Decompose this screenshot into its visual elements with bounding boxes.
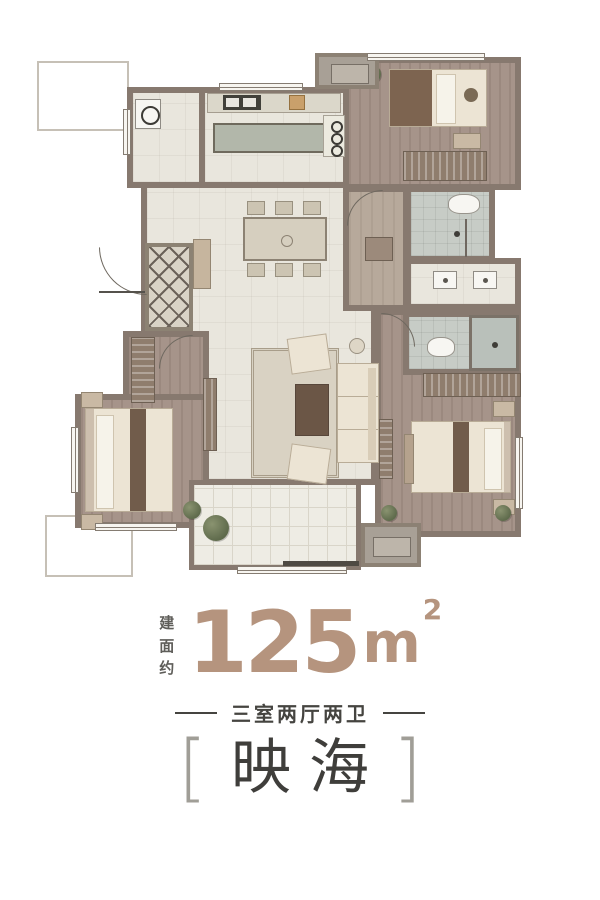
dining-table: [243, 217, 327, 261]
window-small-bedroom-bottom: [95, 523, 177, 531]
window-laundry: [123, 109, 131, 155]
stove-icon: [323, 115, 345, 157]
floor-plan: [37, 53, 567, 588]
shoe-cabinet: [193, 239, 211, 289]
project-name-bracket-left: [: [178, 731, 207, 805]
window-kitchen: [219, 83, 303, 91]
tv-cabinet-living: [203, 378, 217, 451]
vanity-sink-left-icon: [433, 271, 457, 289]
entry-door-leaf: [99, 291, 145, 293]
project-name: 映海: [207, 732, 393, 804]
vanity-area: [405, 258, 521, 310]
area-row: 建面约 125 m 2: [158, 600, 442, 686]
vanity-sink-right-icon: [473, 271, 497, 289]
toilet-master-icon: [427, 337, 455, 357]
bed-secondary: [389, 69, 487, 127]
armchair-bottom: [287, 443, 332, 484]
window-secondary-bedroom: [367, 53, 485, 61]
layout-subtitle: 三室两厅两卫: [231, 698, 369, 727]
nightstand: [493, 401, 515, 417]
subtitle-dash-left: [175, 712, 217, 714]
plant-icon: [381, 505, 397, 521]
entry-rug: [145, 243, 193, 331]
window-master: [515, 437, 523, 509]
area-prefix-label: 建面约: [158, 612, 176, 680]
dining-chair: [275, 201, 293, 215]
floorplan-page: 建面约 125 m 2 三室两厅两卫 [ 映海 ]: [0, 0, 600, 900]
armchair-top: [287, 333, 332, 374]
layout-subtitle-row: 三室两厅两卫: [161, 698, 439, 727]
area-unit: m: [362, 611, 420, 676]
washing-machine-icon: [135, 99, 161, 129]
area-value: 125: [188, 600, 359, 686]
wardrobe-small-bedroom: [131, 337, 155, 403]
nightstand: [81, 392, 103, 408]
wardrobe-master: [423, 373, 521, 397]
console-table: [365, 237, 393, 261]
side-table: [349, 338, 365, 354]
tv-cabinet-master: [379, 419, 393, 479]
window-small-bedroom-left: [71, 427, 79, 493]
dining-chair: [303, 263, 321, 277]
kitchen-island: [213, 123, 335, 153]
ac-unit-block-bottom: [361, 523, 421, 567]
plant-icon: [183, 501, 201, 519]
dining-chair: [275, 263, 293, 277]
entry-door-arc: [99, 247, 147, 295]
project-name-row: [ 映海 ]: [178, 731, 422, 805]
wardrobe-secondary: [403, 151, 487, 181]
sofa: [337, 363, 379, 463]
dining-chair: [247, 201, 265, 215]
shower-partition: [465, 219, 467, 257]
window-balcony: [237, 566, 347, 574]
shower-drain-icon: [454, 231, 460, 237]
subtitle-dash-right: [383, 712, 425, 714]
coffee-table: [295, 384, 329, 436]
nightstand: [453, 133, 481, 149]
dining-chair: [247, 263, 265, 277]
balcony-plant-icon: [203, 515, 229, 541]
ac-platform-top-left: [37, 61, 129, 131]
bed-master: [411, 421, 511, 493]
area-unit-superscript: 2: [423, 593, 442, 626]
shower-master: [469, 315, 519, 371]
kitchen-sink-icon: [223, 95, 261, 110]
bed-small-bedroom: [85, 408, 173, 512]
plant-icon: [495, 505, 511, 521]
project-name-bracket-right: ]: [393, 731, 422, 805]
toilet-icon: [448, 194, 480, 214]
dining-chair: [303, 201, 321, 215]
caption-block: 建面约 125 m 2 三室两厅两卫 [ 映海 ]: [0, 600, 600, 805]
counter-appliance: [289, 95, 305, 110]
